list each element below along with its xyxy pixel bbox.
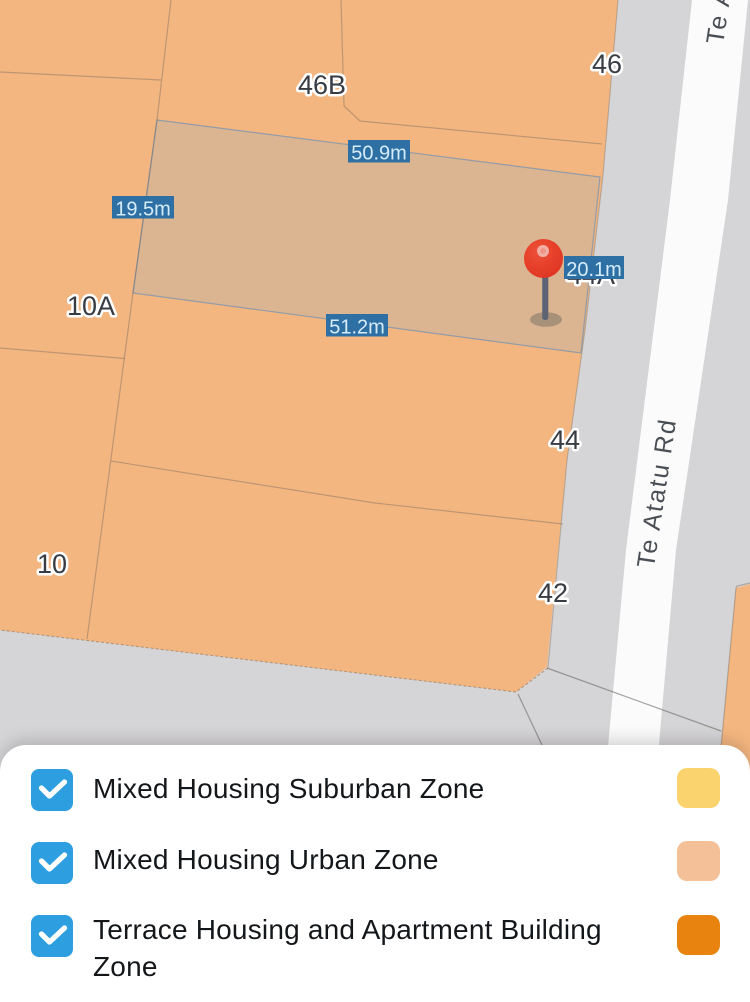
- svg-text:19.5m: 19.5m: [115, 198, 171, 220]
- svg-text:42: 42: [538, 578, 568, 608]
- svg-text:51.2m: 51.2m: [329, 316, 385, 338]
- svg-text:10: 10: [37, 549, 67, 579]
- svg-text:50.9m: 50.9m: [351, 142, 407, 164]
- svg-text:44: 44: [550, 425, 580, 455]
- svg-text:46B: 46B: [298, 70, 346, 100]
- svg-text:20.1m: 20.1m: [566, 259, 622, 281]
- svg-text:46: 46: [592, 49, 622, 79]
- svg-text:10A: 10A: [67, 291, 115, 321]
